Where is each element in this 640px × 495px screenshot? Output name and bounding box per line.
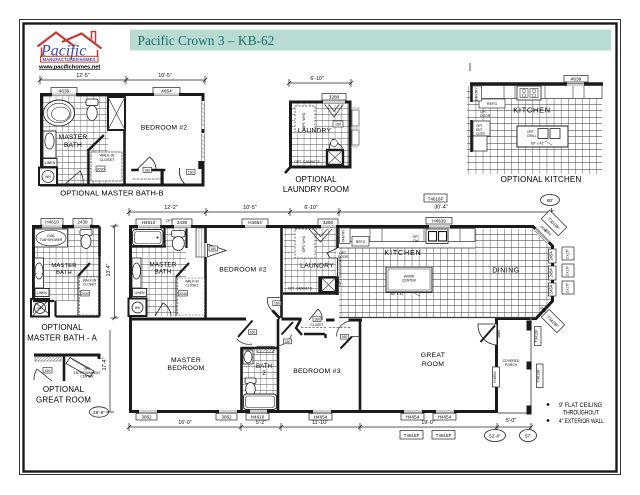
svg-text:30'-4": 30'-4": [434, 205, 447, 211]
svg-text:PORCH: PORCH: [505, 363, 518, 367]
svg-text:160: 160: [274, 302, 280, 306]
svg-text:LAUNDRY: LAUNDRY: [298, 128, 332, 135]
svg-text:WALK-IN: WALK-IN: [100, 154, 115, 158]
svg-text:www.pacifichomes.net: www.pacifichomes.net: [38, 64, 100, 70]
svg-text:16'-0": 16'-0": [178, 420, 191, 426]
svg-text:OPT. CABINETS: OPT. CABINETS: [288, 287, 312, 291]
svg-text:T4618F: T4618F: [428, 196, 444, 201]
svg-text:GREAT: GREAT: [421, 352, 445, 359]
svg-text:T4618F: T4618F: [537, 368, 541, 382]
svg-text:MASTER: MASTER: [59, 134, 88, 141]
svg-text:KITCHEN: KITCHEN: [513, 106, 551, 115]
svg-text:T3412F: T3412F: [535, 329, 539, 343]
svg-text:10'-5": 10'-5": [158, 73, 171, 79]
svg-text:11'-10": 11'-10": [312, 420, 328, 426]
svg-text:9' FLAT CEILING: 9' FLAT CEILING: [559, 402, 602, 409]
svg-text:OPTIONAL MASTER BATH-B: OPTIONAL MASTER BATH-B: [60, 189, 163, 198]
svg-text:17'-4": 17'-4": [102, 357, 108, 370]
svg-text:BATH: BATH: [256, 363, 272, 370]
svg-text:THROUGHOUT: THROUGHOUT: [563, 410, 599, 417]
svg-text:T4618F: T4618F: [436, 433, 452, 438]
svg-text:2'x1'6": 2'x1'6": [566, 282, 570, 293]
svg-text:3280: 3280: [323, 220, 334, 225]
svg-text:160: 160: [342, 335, 348, 339]
svg-text:PANTRY: PANTRY: [342, 229, 346, 243]
svg-text:2'x1'6": 2'x1'6": [566, 265, 570, 276]
svg-text:BEDROOM #2: BEDROOM #2: [141, 125, 188, 132]
svg-text:H4610: H4610: [142, 220, 156, 225]
svg-text:OPTIONAL: OPTIONAL: [41, 323, 83, 332]
svg-text:DINING: DINING: [492, 268, 520, 275]
svg-text:OPT. CABINETS: OPT. CABINETS: [294, 160, 320, 164]
svg-text:160: 160: [285, 340, 291, 344]
svg-text:2030: 2030: [81, 292, 89, 296]
svg-text:H4654: H4654: [314, 415, 328, 420]
svg-text:160: 160: [210, 247, 216, 251]
svg-text:OPTIONAL: OPTIONAL: [295, 175, 337, 184]
svg-text:LINEN: LINEN: [45, 161, 56, 165]
svg-text:CLOSET: CLOSET: [83, 283, 96, 287]
svg-text:BEDROOM: BEDROOM: [167, 365, 204, 372]
svg-text:BEDROOM #2: BEDROOM #2: [219, 267, 267, 274]
svg-text:57': 57': [525, 434, 531, 439]
svg-text:5'-0": 5'-0": [506, 418, 516, 424]
svg-text:CLOSET: CLOSET: [310, 323, 323, 327]
svg-text:LAUNDRY ROOM: LAUNDRY ROOM: [283, 185, 349, 194]
svg-text:GREAT ROOM: GREAT ROOM: [36, 396, 91, 405]
svg-text:160: 160: [250, 331, 256, 335]
svg-text:H4639: H4639: [432, 219, 446, 224]
svg-text:12'-5": 12'-5": [76, 73, 89, 79]
svg-text:MASTER: MASTER: [171, 357, 201, 364]
svg-text:CENTER: CENTER: [402, 279, 416, 283]
svg-text:3680: 3680: [497, 330, 501, 338]
svg-text:19'-0": 19'-0": [421, 420, 434, 426]
svg-text:PANTRY: PANTRY: [475, 87, 479, 101]
svg-text:OPT. GLASS DOOR: OPT. GLASS DOOR: [338, 256, 342, 286]
svg-text:H4654: H4654: [406, 415, 420, 420]
svg-text:CLOSET: CLOSET: [185, 284, 198, 288]
svg-text:WH: WH: [135, 306, 141, 310]
svg-text:BATH: BATH: [56, 270, 72, 276]
svg-text:2030: 2030: [97, 167, 105, 171]
svg-text:OPT. W+D: OPT. W+D: [302, 235, 306, 252]
svg-text:4" EXTERIOR WALL: 4" EXTERIOR WALL: [559, 418, 604, 425]
svg-text:CENTER: CENTER: [80, 375, 94, 379]
svg-text:REFG: REFG: [487, 102, 497, 106]
svg-text:160: 160: [314, 318, 320, 322]
svg-text:2439: 2439: [177, 220, 188, 225]
svg-text:BATH: BATH: [64, 142, 82, 149]
svg-text:REFG: REFG: [356, 240, 366, 244]
svg-text:52'-0": 52'-0": [489, 434, 501, 439]
svg-text:2439: 2439: [77, 220, 88, 225]
svg-text:2'x1'6": 2'x1'6": [566, 248, 570, 259]
svg-text:160: 160: [45, 369, 51, 373]
svg-text:KITCHEN: KITCHEN: [384, 248, 421, 257]
svg-text:2454: 2454: [549, 251, 554, 261]
svg-text:3280: 3280: [329, 95, 340, 101]
svg-text:TUB+SHOWER: TUB+SHOWER: [40, 238, 63, 242]
svg-text:GRILL: GRILL: [527, 134, 537, 138]
svg-text:5'-2": 5'-2": [256, 420, 266, 426]
svg-text:2454: 2454: [549, 284, 554, 294]
svg-text:MASTER: MASTER: [150, 262, 177, 269]
svg-text:160: 160: [144, 168, 150, 172]
svg-text:LINEN: LINEN: [135, 291, 146, 295]
svg-text:BEDROOM #3: BEDROOM #3: [293, 368, 341, 375]
svg-text:10'-5": 10'-5": [243, 205, 256, 211]
svg-text:MASTER: MASTER: [51, 263, 76, 269]
svg-text:LINEN: LINEN: [37, 291, 48, 295]
svg-text:6'-10": 6'-10": [304, 205, 317, 211]
svg-text:13'-4": 13'-4": [106, 263, 112, 276]
svg-text:H4654: H4654: [493, 371, 497, 382]
svg-text:3062: 3062: [141, 415, 152, 420]
svg-text:WH: WH: [45, 175, 51, 179]
svg-text:H4610: H4610: [45, 220, 59, 225]
svg-text:MANUFACTURED HOMES: MANUFACTURED HOMES: [43, 57, 96, 62]
svg-text:H4654: H4654: [248, 220, 262, 225]
svg-text:DOOR: DOOR: [480, 114, 491, 118]
svg-text:T4618F: T4618F: [404, 433, 420, 438]
svg-text:ROOM: ROOM: [422, 361, 444, 368]
svg-text:OPTIONAL: OPTIONAL: [43, 385, 85, 394]
svg-text:6'-10": 6'-10": [310, 76, 323, 82]
svg-text:2454: 2454: [549, 268, 554, 278]
svg-text:LAUNDRY: LAUNDRY: [300, 263, 334, 270]
svg-text:150: 150: [335, 123, 341, 127]
svg-text:BATH: BATH: [155, 269, 172, 276]
svg-text:H4610: H4610: [251, 415, 265, 420]
svg-text:H4654: H4654: [438, 415, 452, 420]
svg-text:DW: DW: [413, 239, 418, 243]
svg-text:2030: 2030: [179, 292, 187, 296]
svg-text:3062: 3062: [221, 415, 232, 420]
svg-text:CNTR: CNTR: [476, 132, 486, 136]
svg-text:26'-8": 26'-8": [93, 410, 105, 415]
svg-text:OPTIONAL KITCHEN: OPTIONAL KITCHEN: [501, 175, 582, 184]
svg-text:2: 2: [262, 370, 266, 377]
svg-text:4639: 4639: [571, 77, 582, 83]
svg-text:60" x 42": 60" x 42": [391, 292, 405, 296]
svg-text:CLOSET: CLOSET: [100, 158, 115, 162]
svg-text:MASTER BATH - A: MASTER BATH - A: [27, 334, 97, 343]
svg-text:60" x 42": 60" x 42": [531, 142, 545, 146]
svg-text:Pacific Crown 3 – KB-62: Pacific Crown 3 – KB-62: [138, 33, 275, 48]
svg-text:60': 60': [547, 198, 553, 203]
svg-text:160: 160: [188, 171, 194, 175]
svg-text:12'-2": 12'-2": [164, 205, 177, 211]
